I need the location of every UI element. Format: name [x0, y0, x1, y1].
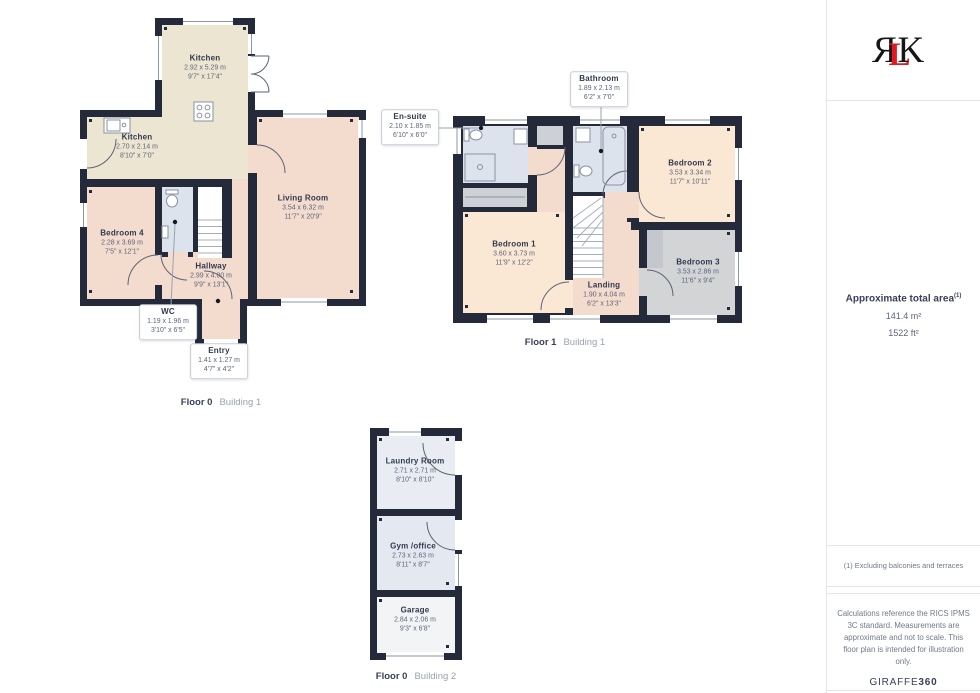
wall: [87, 179, 232, 187]
window: [485, 116, 527, 124]
door-threshold: [528, 147, 537, 175]
room-ensuite-area: [463, 126, 528, 183]
floor-caption-0-b2: Floor 0Building 2: [376, 671, 456, 682]
door-threshold: [565, 280, 573, 308]
room-label-kitchen2: Kitchen 2.70 x 2.14 m 8'10" x 7'0": [116, 133, 158, 162]
room-wc-area: [162, 187, 193, 252]
window: [80, 203, 87, 227]
wall: [631, 222, 735, 230]
window: [248, 34, 255, 54]
info-sidebar: R L K Approximate total area(1) 141.4 m²…: [826, 0, 980, 693]
wall: [377, 590, 455, 597]
room-label-garage: Garage 2.84 x 2.06 m 9'3" x 6'8": [394, 606, 436, 635]
window: [283, 110, 327, 118]
window: [665, 116, 710, 124]
room-label-hallway: Hallway 2.99 x 4.00 m 9'9" x 13'1": [190, 262, 232, 291]
door-threshold: [639, 268, 647, 296]
footnote-marker: (1): [954, 293, 961, 299]
wall: [377, 509, 455, 516]
wall: [248, 117, 257, 145]
room-label-landing: Landing 1.90 x 4.04 m 6'2" x 13'3": [583, 281, 625, 310]
room-bathroom-area: [573, 126, 627, 192]
logo-section: R L K: [827, 0, 980, 101]
closet-area: [647, 230, 663, 268]
floor-caption-0-b1: Floor 0Building 1: [181, 397, 261, 408]
room-label-bedroom2: Bedroom 2 3.53 x 3.34 m 11'7" x 10'11": [668, 159, 712, 188]
room-callout-entry: Entry 1.41 x 1.27 m 4'7" x 4'2": [190, 343, 248, 379]
window: [389, 428, 421, 436]
room-label-laundry: Laundry Room 2.71 x 2.71 m 8'10" x 8'10": [386, 457, 445, 486]
total-area-block: Approximate total area(1) 141.4 m² 1522 …: [827, 293, 980, 338]
window: [670, 315, 717, 323]
floorplan-canvas: Kitchen 2.92 x 5.29 m 9'7" x 17'4" Kitch…: [0, 0, 980, 693]
giraffe360-logo: GIRAFFE360: [827, 677, 980, 688]
garage-door-opening: [386, 652, 444, 660]
window: [358, 120, 366, 138]
window: [580, 116, 620, 124]
window: [281, 298, 327, 306]
disclaimer-text: Calculations reference the RICS IPMS 3C …: [827, 594, 980, 668]
closet-area: [463, 188, 527, 207]
wall: [528, 175, 537, 183]
wall: [639, 296, 647, 315]
footnote-section: (1) Excluding balconies and terraces: [827, 545, 980, 587]
total-area-imperial: 1522 ft²: [827, 328, 980, 338]
wall: [627, 126, 639, 192]
wall: [155, 187, 162, 255]
window: [550, 315, 600, 323]
wall: [565, 308, 573, 313]
wall: [639, 230, 647, 268]
window: [487, 315, 533, 323]
closet-area: [537, 126, 563, 145]
room-label-gym-office: Gym /office 2.73 x 2.63 m 8'11" x 8'7": [390, 542, 436, 571]
total-area-title: Approximate total area(1): [827, 293, 980, 304]
wall: [565, 126, 573, 192]
window: [453, 128, 461, 154]
door-opening: [455, 520, 462, 550]
room-label-bedroom3: Bedroom 3 3.53 x 2.86 m 11'6" x 9'4": [676, 258, 720, 287]
french-door-opening: [248, 56, 255, 92]
footnote-text: (1) Excluding balconies and terraces: [836, 561, 972, 570]
wall: [248, 173, 257, 299]
window: [455, 554, 462, 586]
logo-letter-k: K: [898, 32, 925, 69]
wall: [155, 285, 162, 299]
wall: [188, 252, 193, 257]
room-callout-ensuite: En-suite 2.10 x 1.85 m 6'10" x 6'0": [381, 109, 439, 145]
floor-caption-1-b1: Floor 1Building 1: [525, 337, 605, 348]
brand-logo-icon: R L K: [872, 28, 936, 78]
room-label-bedroom4: Bedroom 4 2.28 x 3.69 m 7'5" x 12'1": [100, 229, 144, 258]
total-area-metric: 141.4 m²: [827, 311, 980, 321]
window: [735, 148, 742, 180]
side-door-opening: [80, 139, 87, 169]
room-label-living-room: Living Room 3.54 x 6.32 m 11'7" x 20'9": [278, 194, 329, 223]
window: [183, 18, 233, 25]
room-callout-wc: WC 1.19 x 1.96 m 3'10" x 6'5": [139, 304, 197, 340]
entry-porch-area: [202, 298, 240, 339]
room-callout-bathroom: Bathroom 1.89 x 2.13 m 6'2" x 7'0": [570, 71, 628, 107]
total-area-section: Approximate total area(1) 141.4 m² 1522 …: [827, 100, 980, 546]
wall: [528, 126, 537, 147]
corridor-area: [537, 149, 565, 212]
room-label-kitchen: Kitchen 2.92 x 5.29 m 9'7" x 17'4": [184, 54, 226, 83]
room-kitchen2-area: [87, 117, 248, 179]
stair-treads: [198, 214, 222, 258]
wall: [565, 212, 573, 280]
door-threshold: [627, 192, 639, 218]
window: [735, 252, 742, 286]
stair-treads: [573, 222, 603, 278]
door-opening: [455, 441, 462, 475]
wall: [222, 187, 232, 258]
disclaimer-section: Calculations reference the RICS IPMS 3C …: [827, 593, 980, 691]
window: [155, 36, 162, 80]
wall: [162, 252, 168, 257]
room-label-bedroom1: Bedroom 1 3.60 x 3.73 m 11'9" x 12'2": [492, 240, 536, 269]
